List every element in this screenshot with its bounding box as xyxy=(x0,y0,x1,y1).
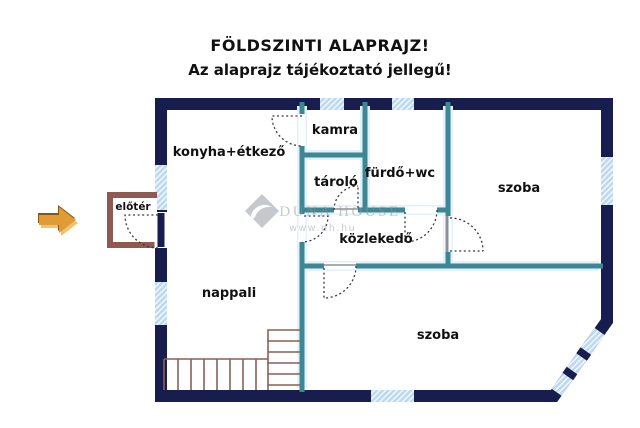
watermark-brand: DUNA HOUSE xyxy=(279,204,400,220)
room-label-konyha-etkezo: konyha+étkező xyxy=(173,145,286,160)
floor-plan-page: FÖLDSZINTI ALAPRAJZ! Az alaprajz tájékoz… xyxy=(0,0,640,428)
room-label-kamra: kamra xyxy=(312,123,358,138)
entrance-arrow-icon xyxy=(38,205,78,236)
floor-plan: konyha+étkező kamra tároló fürdő+wc szob… xyxy=(0,0,640,428)
room-label-tarolo: tároló xyxy=(314,175,358,190)
watermark-url: www.dh.hu xyxy=(289,223,357,234)
entrance-arrow-body xyxy=(39,207,76,233)
room-label-furdo-wc: fürdő+wc xyxy=(365,166,435,181)
room-label-nappali: nappali xyxy=(202,286,256,301)
front-door-leaf xyxy=(158,213,165,247)
room-label-szoba-felso: szoba xyxy=(498,181,540,196)
room-label-eloter: előtér xyxy=(115,201,151,213)
room-label-kozlekedo: közlekedő xyxy=(339,232,412,247)
room-label-szoba-also: szoba xyxy=(417,328,459,343)
